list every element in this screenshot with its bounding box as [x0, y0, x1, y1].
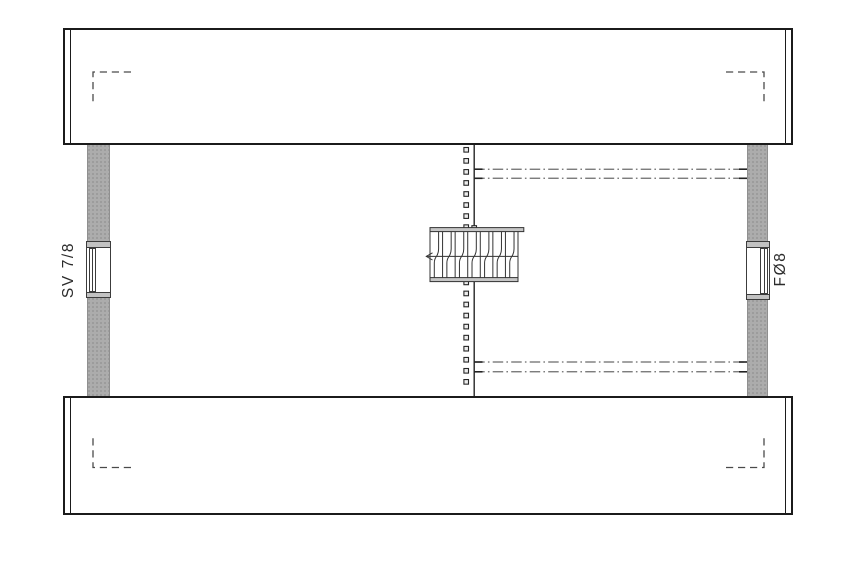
- corner-marks: [93, 72, 764, 468]
- ridge-dot: [464, 192, 469, 197]
- ridge-dot: [464, 170, 469, 175]
- stair-rail-top: [430, 228, 524, 232]
- floor-plan-canvas: SV 7/8 FØ8: [0, 0, 864, 576]
- stair-rail-bottom: [430, 278, 518, 282]
- ridge-dot: [464, 302, 469, 307]
- ridge-dot: [464, 335, 469, 340]
- ridge-dot: [464, 203, 469, 208]
- ridge-dot: [464, 181, 469, 186]
- corner-mark-top-right: [726, 72, 764, 103]
- ridge-dot: [464, 346, 469, 351]
- ridge-dot: [464, 380, 469, 385]
- ridge-dot: [464, 313, 469, 318]
- stair-body: [430, 228, 518, 282]
- ridge-dot: [464, 159, 469, 164]
- corner-mark-bottom-right: [726, 437, 764, 468]
- ridge-dot: [464, 148, 469, 153]
- ridge-dot: [464, 369, 469, 374]
- corner-mark-bottom-left: [93, 437, 131, 468]
- corner-mark-top-left: [93, 72, 131, 103]
- ridge-dot: [464, 291, 469, 296]
- plan-linework: [0, 0, 864, 576]
- ridge-dot: [464, 324, 469, 329]
- ridge-dot: [464, 357, 469, 362]
- staircase: [426, 228, 524, 282]
- ridge-dot: [464, 214, 469, 219]
